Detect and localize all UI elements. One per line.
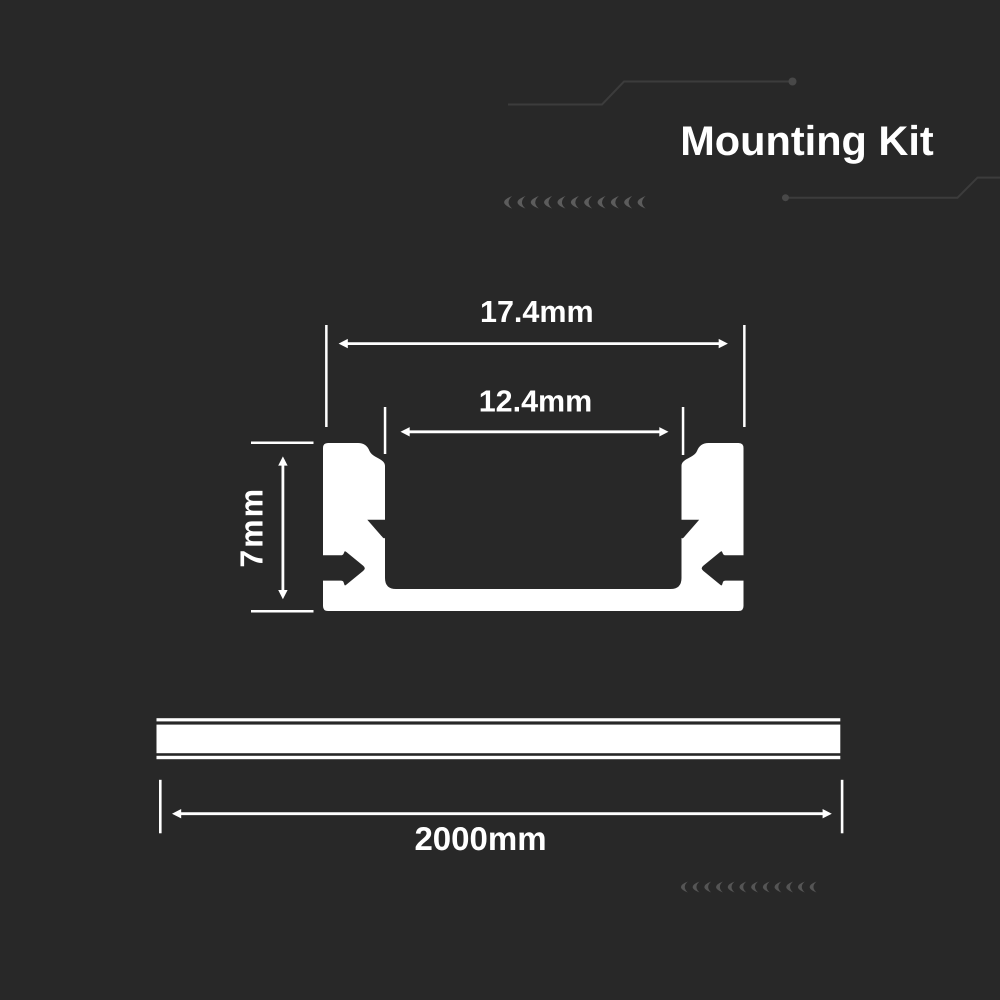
svg-text:2000mm: 2000mm (414, 820, 546, 857)
svg-text:12.4mm: 12.4mm (479, 385, 593, 419)
svg-text:Mounting Kit: Mounting Kit (680, 117, 934, 164)
svg-text:7mm: 7mm (234, 487, 270, 568)
svg-text:17.4mm: 17.4mm (480, 295, 594, 329)
